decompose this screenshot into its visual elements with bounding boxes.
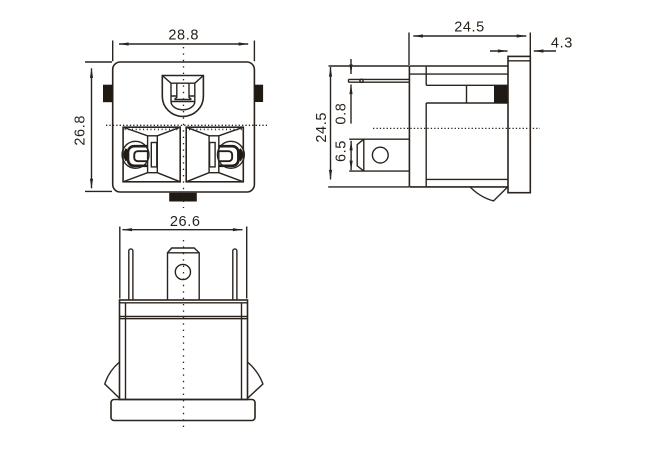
svg-text:24.5: 24.5 [454,19,485,35]
svg-text:4.3: 4.3 [551,36,573,52]
svg-text:28.8: 28.8 [168,28,199,44]
svg-text:6.5: 6.5 [333,140,349,162]
svg-text:26.6: 26.6 [170,214,201,230]
svg-text:24.5: 24.5 [314,112,330,143]
svg-text:26.8: 26.8 [73,115,89,146]
svg-text:0.8: 0.8 [333,103,349,125]
